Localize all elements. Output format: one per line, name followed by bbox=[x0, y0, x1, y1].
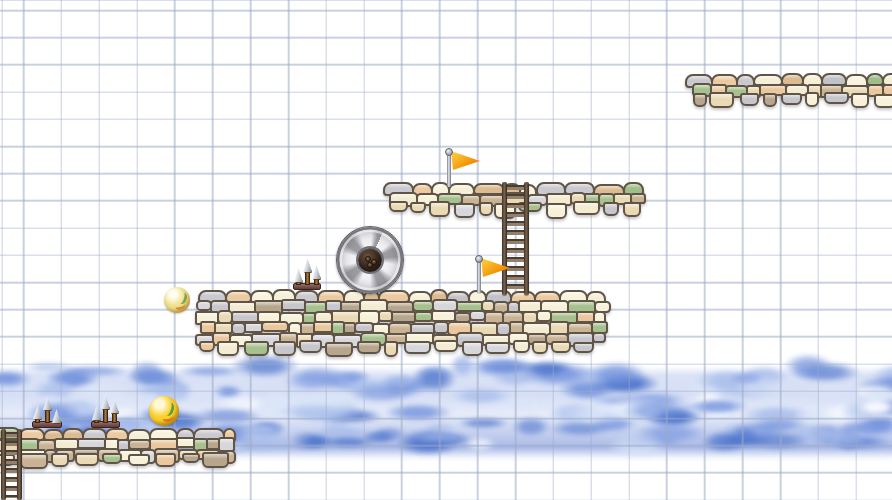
stone bbox=[217, 341, 239, 356]
cloud-puff bbox=[320, 436, 375, 448]
spike-shaft bbox=[103, 408, 108, 423]
ball-golden bbox=[149, 396, 179, 426]
stone bbox=[182, 453, 200, 463]
stone bbox=[479, 202, 493, 216]
hub-gear bbox=[367, 262, 373, 268]
stone bbox=[102, 453, 122, 465]
stone bbox=[513, 340, 530, 353]
spike-tip bbox=[33, 405, 42, 419]
stone bbox=[281, 299, 306, 310]
stone bbox=[273, 341, 296, 356]
stone bbox=[462, 341, 483, 356]
stone bbox=[244, 322, 263, 334]
flag-pole bbox=[477, 261, 481, 294]
spike-tip bbox=[43, 396, 52, 410]
cloud-puff bbox=[586, 361, 648, 387]
cloud-puff bbox=[730, 427, 759, 442]
stone bbox=[20, 453, 47, 469]
cloud-puff bbox=[23, 361, 74, 373]
stone bbox=[325, 342, 353, 357]
stone bbox=[313, 321, 333, 333]
ball-pale-yellow bbox=[164, 287, 190, 313]
stone bbox=[740, 93, 760, 106]
spike-tip bbox=[312, 265, 321, 279]
platform-top-right bbox=[687, 73, 892, 105]
stone bbox=[551, 341, 572, 353]
cloud-puff bbox=[457, 417, 510, 429]
stone bbox=[781, 93, 802, 105]
flag-banner bbox=[451, 151, 480, 170]
stone bbox=[485, 342, 510, 354]
cloud-puff bbox=[621, 399, 687, 422]
flag-pole-knob bbox=[445, 148, 453, 156]
stone bbox=[357, 341, 382, 354]
spike bbox=[294, 268, 303, 285]
stone bbox=[709, 92, 735, 107]
ladder-rail bbox=[17, 429, 22, 500]
stone bbox=[763, 93, 777, 107]
ladder-rail bbox=[1, 429, 6, 500]
cloud-puff bbox=[855, 398, 892, 416]
stone bbox=[202, 452, 229, 468]
spikes-main-platform bbox=[293, 256, 321, 290]
spike-tip bbox=[294, 268, 303, 282]
stone bbox=[429, 201, 450, 217]
stone bbox=[805, 92, 819, 107]
spike bbox=[52, 409, 61, 423]
stone bbox=[454, 203, 475, 218]
stone bbox=[51, 453, 70, 467]
cloud-puff bbox=[289, 364, 346, 386]
stone bbox=[389, 201, 409, 211]
stone bbox=[434, 340, 458, 352]
stone bbox=[391, 311, 416, 323]
spike bbox=[33, 405, 42, 423]
stone bbox=[410, 202, 426, 213]
cloud-puff bbox=[509, 396, 539, 412]
cloud-puff bbox=[408, 432, 475, 443]
flag-banner bbox=[481, 258, 510, 277]
spike-tip bbox=[92, 406, 101, 420]
stone bbox=[532, 341, 549, 353]
stone bbox=[244, 341, 270, 356]
stone bbox=[299, 340, 322, 353]
game-viewport[interactable] bbox=[0, 0, 892, 500]
stone bbox=[155, 453, 177, 466]
spinning-wheel bbox=[336, 226, 404, 294]
flag-upper bbox=[445, 148, 481, 187]
cloud-puff bbox=[605, 434, 672, 459]
spike-shaft bbox=[305, 271, 310, 285]
cloud-puff bbox=[0, 369, 33, 389]
cloud-puff bbox=[128, 360, 166, 383]
ladder-bottom-left bbox=[1, 429, 22, 500]
stone bbox=[573, 201, 600, 215]
cloud-puff bbox=[826, 427, 867, 449]
cloud-puff bbox=[450, 387, 511, 405]
cloud-puff bbox=[685, 398, 749, 415]
cloud-puff bbox=[511, 416, 551, 438]
spikes-left-b bbox=[91, 393, 120, 428]
cloud-puff bbox=[411, 366, 457, 393]
stone bbox=[404, 341, 431, 355]
spike-tip bbox=[52, 409, 61, 423]
flag-lower bbox=[475, 255, 511, 294]
spike-shaft bbox=[45, 409, 50, 423]
stone bbox=[128, 454, 150, 466]
cloud-puff bbox=[383, 403, 453, 422]
stone bbox=[592, 332, 606, 343]
stone bbox=[199, 341, 215, 352]
stone bbox=[693, 93, 707, 107]
cloud-puff bbox=[338, 370, 371, 382]
spike-tip bbox=[101, 395, 110, 409]
wheel-hub bbox=[358, 248, 382, 272]
hub-gear bbox=[365, 256, 371, 262]
spikes-left-a bbox=[32, 394, 62, 428]
spike bbox=[43, 396, 52, 423]
platform-bottom-left bbox=[0, 427, 231, 465]
stone bbox=[261, 321, 290, 332]
stone bbox=[623, 202, 640, 218]
platform-main bbox=[197, 289, 606, 353]
flag-pole-knob bbox=[475, 255, 483, 263]
ladder-rail bbox=[524, 182, 529, 295]
stone bbox=[824, 92, 848, 104]
spike bbox=[92, 406, 101, 423]
stone bbox=[603, 202, 618, 215]
stone bbox=[546, 203, 567, 219]
stone bbox=[874, 94, 892, 108]
stone bbox=[384, 341, 398, 357]
spike bbox=[110, 399, 119, 423]
spike bbox=[312, 265, 321, 285]
stone bbox=[851, 93, 869, 109]
stone bbox=[573, 342, 594, 353]
stone bbox=[75, 453, 99, 466]
spike bbox=[101, 395, 110, 423]
spike bbox=[303, 258, 312, 285]
flag-pole bbox=[447, 154, 451, 187]
spike-tip bbox=[110, 399, 119, 413]
spike-tip bbox=[303, 258, 312, 272]
